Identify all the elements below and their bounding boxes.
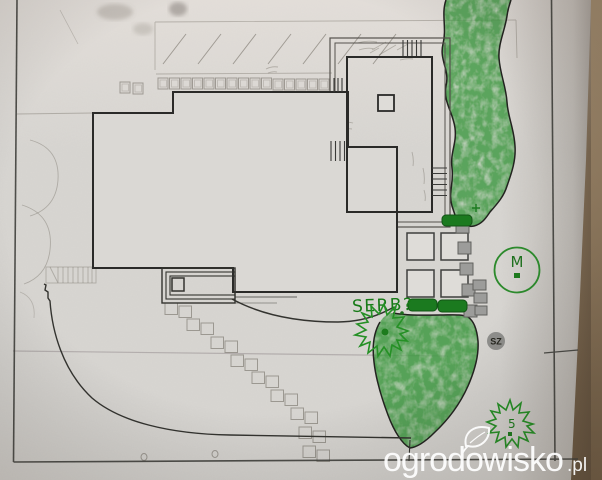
garden-plan-photo: M SZ SERB? 5 ogrodowisko .pl: [0, 0, 602, 480]
watermark-suffix: .pl: [567, 455, 587, 476]
photo-vignette: [0, 0, 602, 480]
